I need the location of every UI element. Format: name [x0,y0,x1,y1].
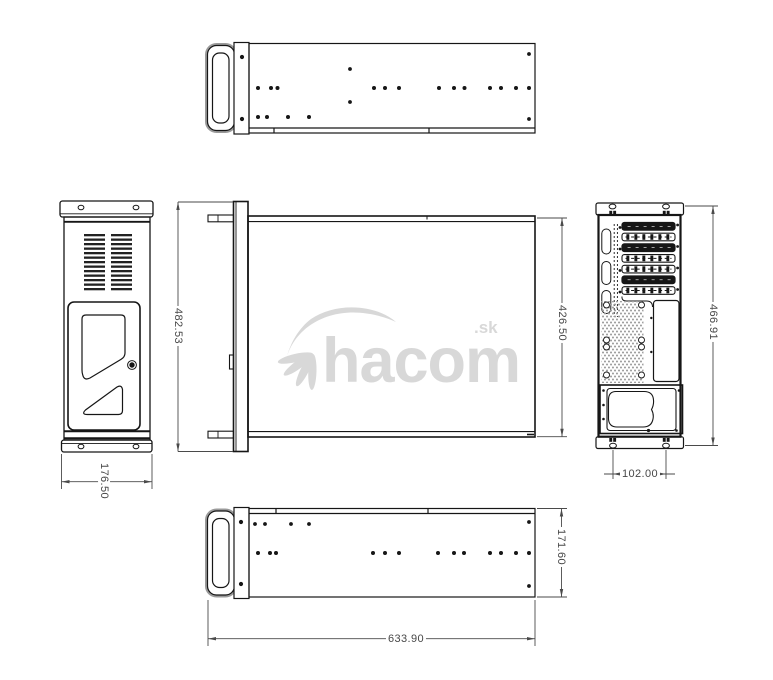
dim-chassis-depth-line [208,600,535,646]
dim-front-panel-width: 176.50 [98,461,110,501]
bottom-view-outline [249,509,535,598]
front-panel-outline [64,217,150,440]
hacom-logo-petals [277,350,317,390]
rear-flange-clips-bottom [609,438,669,442]
dim-rear-panel-height: 466.91 [707,302,719,342]
bottom-view-handle [207,510,236,596]
dim-chassis-depth: 633.90 [386,633,426,645]
rear-psu-bay [600,385,683,434]
top-view-screw-holes [240,52,531,121]
front-view [60,201,153,452]
bottom-view-screw-holes [239,520,531,588]
top-view [207,43,536,135]
door-window-upper [82,315,125,379]
dim-chassis-body-width: 171.60 [555,527,567,567]
dim-front-panel-height: 482.53 [172,306,184,346]
rear-io-plate [654,301,680,382]
front-door [68,302,140,430]
rear-view [596,203,684,449]
rear-io-knockouts [602,229,611,314]
bottom-view [207,508,536,599]
dimension-lines [62,202,719,646]
dim-rear-foot-spacing: 102.00 [620,468,660,480]
dim-chassis-body-height: 426.50 [556,303,568,343]
rear-mounting-flange-bottom [596,437,684,449]
psu-cutout [609,392,654,428]
door-window-lower [84,386,123,414]
watermark: hacom .sk [322,330,520,393]
top-view-cover-outline [249,44,535,134]
watermark-tld: .sk [474,318,498,338]
side-view-rack-ear-bottom [208,431,234,438]
front-vent-grille [84,234,132,290]
technical-drawing-canvas: hacom .sk [0,0,773,680]
top-view-handle [207,45,236,132]
dim-front-panel-height-line [176,202,233,452]
rear-expansion-slots [622,223,675,295]
side-view-rack-ear-top [208,215,234,222]
